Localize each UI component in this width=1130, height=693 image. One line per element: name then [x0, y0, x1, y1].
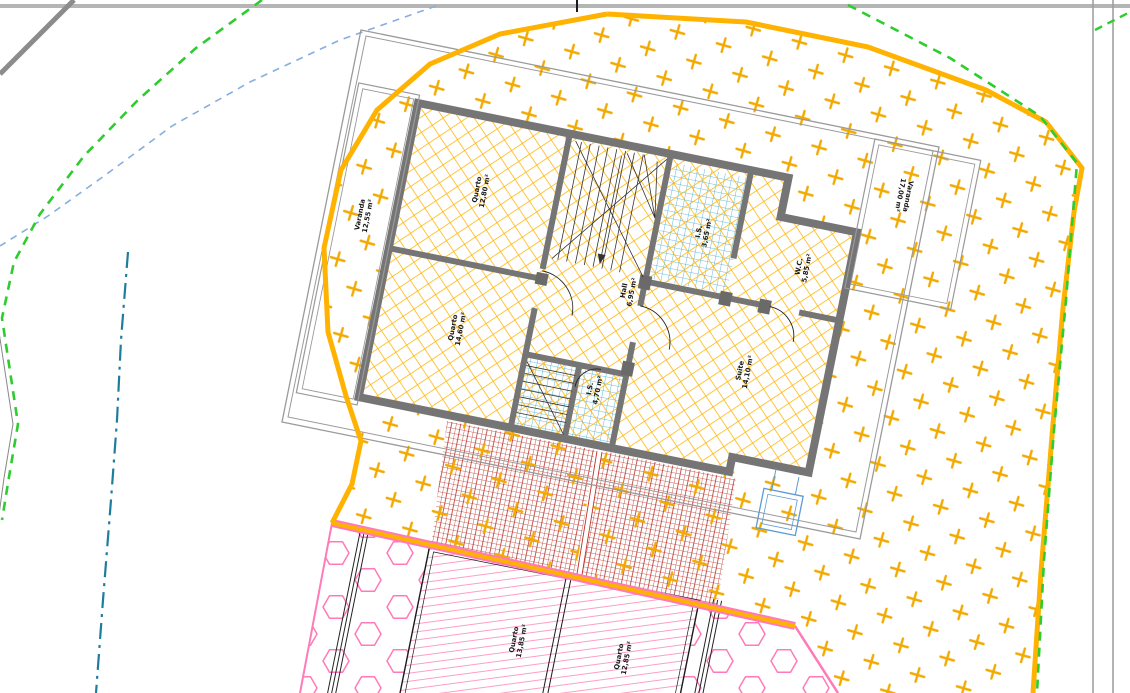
site-teal-dashdot-line — [96, 252, 128, 693]
sheet-corner-diagonal — [0, 0, 74, 74]
site-green-dashed-line — [2, 0, 262, 520]
floor-plan-canvas[interactable]: Varanda12,55 m²Quarto12,80 m²Quarto14,60… — [0, 0, 1130, 693]
floor-plan-sheet: Varanda12,55 m²Quarto12,80 m²Quarto14,60… — [0, 0, 1130, 693]
sheet-top-bar — [0, 4, 1130, 8]
